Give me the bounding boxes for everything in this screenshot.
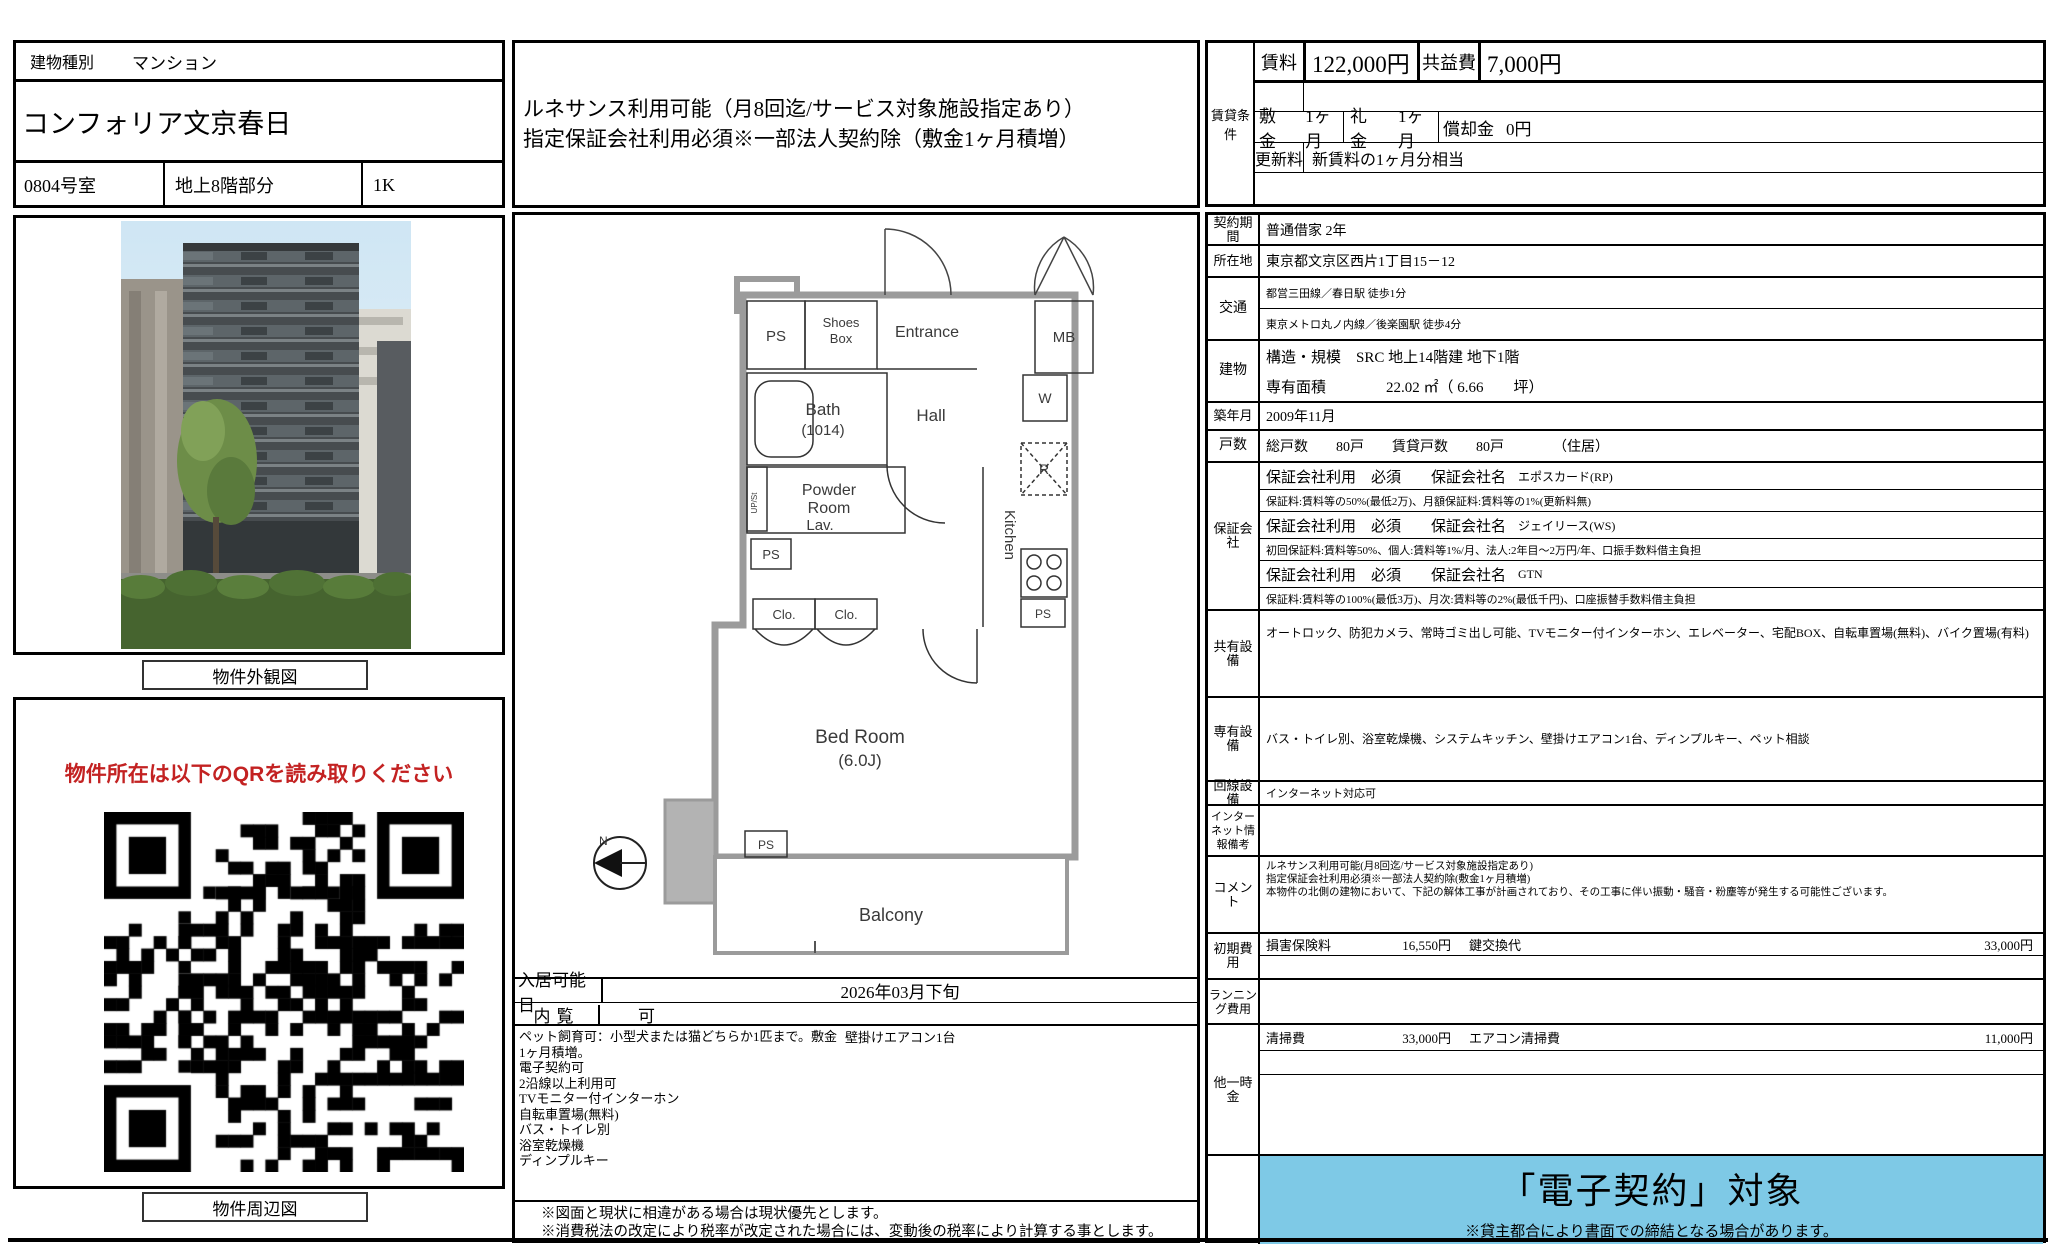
comment-value: ルネサンス利用可能(月8回迄/サービス対象施設指定あり) 指定保証会社利用必須※… [1260,857,2043,932]
guarantor-sub-1: 保証料:賃料等の50%(最低2万)、月額保証料:賃料等の1%(更新料無) [1260,490,2043,512]
shoes-label-2: Box [830,331,853,346]
building-structure: 構造・規模 SRC 地上14階建 地下1階 [1260,341,2043,371]
feature-item: 2沿線以上利用可 [519,1076,1197,1092]
deposit-cell: 敷金 1ヶ月 [1255,112,1344,142]
initial-cost-label: 初期費用 [1208,934,1260,978]
closet-label-2: Clo. [834,607,857,622]
initial-cost-items: 損害保険料 16,550円 鍵交換代 33,000円 [1260,934,2043,956]
initial-cost-empty [1260,956,2043,978]
refrigerator-label: R [1039,461,1049,477]
guarantor-main-3: 保証会社利用 必須 保証会社名 GTN [1260,561,2043,588]
building-type-row: 建物種別 マンション [16,43,502,82]
ps-top-label: PS [766,328,786,345]
access-line-2: 東京メトロ丸ノ内線／後楽園駅 徒歩4分 [1260,309,2043,339]
built-row: 築年月 2009年11月 [1208,403,2043,431]
room-number: 0804号室 [16,163,165,207]
property-sheet: 建物種別 マンション コンフォリア文京春日 0804号室 地上8階部分 1K [0,0,2056,1244]
address-label: 所在地 [1208,246,1260,276]
exterior-photo [121,221,411,649]
hall-label: Hall [916,406,945,425]
rent-group-label: 賃貸条件 [1208,43,1255,204]
running-cost-label: ランニング費用 [1208,980,1260,1023]
amortization-cell: 償却金 0円 [1439,112,2043,142]
feature-item: TVモニター付インターホン [519,1091,1197,1107]
viewing-row: 内覧 可 [515,1005,1197,1026]
upst-label: UP/St [750,492,759,514]
movein-label: 入居可能日 [515,979,603,1002]
ps2-label: PS [762,547,780,562]
onetime-fee-label: 他一時金 [1208,1025,1260,1154]
guarantor-sub-3: 保証料:賃料等の100%(最低3万)、月次:賃料等の2%(最低千円)、口座振替手… [1260,588,2043,609]
insurance-label: 損害保険料 [1260,935,1366,954]
built-label: 築年月 [1208,403,1260,429]
address-value: 東京都文京区西片1丁目15－12 [1260,246,2043,276]
feature-item: 電子契約可 [519,1060,1197,1076]
movein-value: 2026年03月下旬 [603,979,1197,1002]
guarantor-main-1: 保証会社利用 必須 保証会社名 エポスカード(RP) [1260,463,2043,490]
address-row: 所在地 東京都文京区西片1丁目15－12 [1208,246,2043,278]
comment-row: コメント ルネサンス利用可能(月8回迄/サービス対象施設指定あり) 指定保証会社… [1208,857,2043,934]
guarantor-row: 保証会社 保証会社利用 必須 保証会社名 エポスカード(RP) 保証料:賃料等の… [1208,463,2043,611]
building-row: 建物 構造・規模 SRC 地上14階建 地下1階 専有面積 22.02 ㎡（ 6… [1208,341,2043,403]
exterior-caption: 物件外観図 [142,660,368,690]
access-label: 交通 [1208,278,1260,339]
feature-right: 壁掛けエアコン1台 [845,1030,956,1046]
building-type-label: 建物種別 [30,49,94,73]
shoes-label-1: Shoes [823,315,860,330]
lavatory-label: Lav. [806,517,833,534]
internet-label: インターネット情報備考 [1208,806,1260,855]
amortization-value: 0円 [1506,115,1532,140]
comment-label: コメント [1208,857,1260,932]
bedroom-label: Bed Room [815,727,905,748]
map-caption: 物件周辺図 [142,1192,368,1222]
top-note-box: ルネサンス利用可能（月8回迄/サービス対象施設指定あり） 指定保証会社利用必須※… [512,40,1200,208]
ac-cleaning-value: 11,000円 [1985,1028,2043,1047]
movein-row: 入居可能日 2026年03月下旬 [515,977,1197,1003]
rent-row: 賃料 122,000円 共益費 7,000円 [1255,43,2043,83]
entrance-label: Entrance [895,324,959,341]
features-block: ペット飼育可：小型犬または猫どちらか1匹まで。敷金1ヶ月積増。 電子契約可 2沿… [515,1027,1197,1200]
qr-box: 物件所在は以下のQRを読み取りください [13,697,505,1189]
feature-item: バス・トイレ別 [519,1122,1197,1138]
econtract-label-cell [1208,1156,1260,1244]
common-fee-value: 7,000円 [1481,43,2043,80]
unit-row: 0804号室 地上8階部分 1K [16,163,502,207]
running-cost-value [1260,980,2043,1023]
rent-conditions-box: 賃貸条件 賃料 122,000円 共益費 7,000円 敷金 1ヶ月 礼金 1ヶ… [1205,40,2046,207]
onetime-fee-row: 他一時金 清掃費 33,000円 エアコン清掃費 11,000円 [1208,1025,2043,1156]
rent-empty-row [1255,83,2043,112]
layout-type: 1K [363,163,502,207]
renewal-value: 新賃料の1ヶ月分相当 [1304,143,2043,172]
onetime-empty-2 [1260,1075,2043,1154]
rent-label: 賃料 [1255,43,1306,80]
qr-heading: 物件所在は以下のQRを読み取りください [16,758,502,788]
econtract-row: 「電子契約」対象 ※貸主都合により書面での締結となる場合があります。 [1208,1156,2043,1244]
units-label: 戸数 [1208,431,1260,461]
footnote-1: ※図面と現状に相違がある場合は現状優先とします。 [541,1205,1197,1223]
building-area: 専有面積 22.02 ㎡（ 6.66 坪） [1260,371,2043,401]
floorplan-box: N PS Shoes Box Entrance MB Bath (1014) H… [512,212,1200,1243]
north-arrow: N [594,834,646,889]
powder-label-2: Room [808,500,851,517]
cleaning-label: 清掃費 [1260,1028,1366,1047]
contract-row: 契約期間 普通借家 2年 [1208,215,2043,246]
balcony-label: Balcony [859,905,923,925]
viewing-label: 内覧 [515,1005,600,1024]
internet-value [1260,806,2043,855]
rent-value: 122,000円 [1306,43,1420,80]
closet-label-1: Clo. [772,607,795,622]
insurance-value: 16,550円 [1366,935,1451,954]
ps4-label: PS [758,838,774,852]
deposit-row: 敷金 1ヶ月 礼金 1ヶ月 償却金 0円 [1255,112,2043,143]
building-label: 建物 [1208,341,1260,401]
running-cost-row: ランニング費用 [1208,980,2043,1025]
shared-facilities-row: 共有設備 オートロック、防犯カメラ、常時ゴミ出し可能、TVモニター付インターホン… [1208,611,2043,698]
shared-facilities-label: 共有設備 [1208,611,1260,696]
header-box: 建物種別 マンション コンフォリア文京春日 0804号室 地上8階部分 1K [13,40,505,208]
access-row: 交通 都営三田線／春日駅 徒歩1分 東京メトロ丸ノ内線／後楽園駅 徒歩4分 [1208,278,2043,341]
guarantor-label: 保証会社 [1208,463,1260,609]
floor-position: 地上8階部分 [165,163,363,207]
rent-empty-row2 [1255,173,2043,204]
line-facilities-value: インターネット対応可 [1260,782,2043,804]
north-label: N [599,834,608,848]
ps3-label: PS [1035,607,1051,621]
initial-cost-row: 初期費用 損害保険料 16,550円 鍵交換代 33,000円 [1208,934,2043,980]
guarantor-main-2: 保証会社利用 必須 保証会社名 ジェイリース(WS) [1260,512,2043,539]
econtract-title: 「電子契約」対象 [1499,1162,1803,1214]
key-exchange-value: 33,000円 [1984,935,2043,954]
feature-item: 自転車置場(無料) [519,1107,1197,1123]
details-table: 契約期間 普通借家 2年 所在地 東京都文京区西片1丁目15－12 交通 都営三… [1205,212,2046,1243]
feature-item: ディンプルキー [519,1153,1197,1169]
ac-cleaning-label: エアコン清掃費 [1451,1028,1985,1047]
contract-label: 契約期間 [1208,215,1260,244]
bath-label: Bath [806,400,841,419]
floorplan: N PS Shoes Box Entrance MB Bath (1014) H… [515,215,1197,977]
amortization-label: 償却金 [1443,115,1494,140]
bath-size-label: (1014) [801,422,844,439]
onetime-empty-1 [1260,1051,2043,1075]
access-line-1: 都営三田線／春日駅 徒歩1分 [1260,278,2043,309]
page-bottom-rule [8,1238,2048,1242]
powder-label-1: Powder [802,482,857,499]
property-name: コンフォリア文京春日 [16,82,502,163]
mb-label: MB [1053,329,1076,346]
units-value: 総戸数 80戸 賃貸戸数 80戸 （住居） [1260,431,2043,461]
top-note-line1: ルネサンス利用可能（月8回迄/サービス対象施設指定あり） [523,94,1197,124]
feature-item: ペット飼育可：小型犬または猫どちらか1匹まで。敷金1ヶ月積増。 [519,1029,841,1060]
qr-code [104,812,464,1172]
building-type-value: マンション [132,49,217,74]
contract-value: 普通借家 2年 [1260,215,2043,244]
service-block [665,800,715,903]
viewing-value: 可 [600,1005,1197,1024]
cleaning-value: 33,000円 [1366,1028,1451,1047]
private-facilities-label: 専有設備 [1208,698,1260,780]
shared-facilities-value: オートロック、防犯カメラ、常時ゴミ出し可能、TVモニター付インターホン、エレベー… [1260,611,2043,696]
common-fee-label: 共益費 [1420,43,1481,80]
top-note-line2: 指定保証会社利用必須※一部法人契約除（敷金1ヶ月積増） [523,124,1197,154]
units-row: 戸数 総戸数 80戸 賃貸戸数 80戸 （住居） [1208,431,2043,463]
renewal-row: 更新料 新賃料の1ヶ月分相当 [1255,143,2043,173]
key-exchange-label: 鍵交換代 [1451,935,1984,954]
internet-row: インターネット情報備考 [1208,806,2043,857]
footnotes: ※図面と現状に相違がある場合は現状優先とします。 ※消費税法の改定により税率が改… [515,1200,1197,1240]
renewal-label: 更新料 [1255,143,1304,172]
private-facilities-row: 専有設備 バス・トイレ別、浴室乾燥機、システムキッチン、壁掛けエアコン1台、ディ… [1208,698,2043,782]
keymoney-cell: 礼金 1ヶ月 [1344,112,1439,142]
kitchen-label: Kitchen [1001,510,1018,560]
line-facilities-row: 回線設備 インターネット対応可 [1208,782,2043,806]
feature-item: 浴室乾燥機 [519,1138,1197,1154]
built-value: 2009年11月 [1260,403,2043,429]
econtract-banner: 「電子契約」対象 ※貸主都合により書面での締結となる場合があります。 [1260,1156,2043,1244]
guarantor-sub-2: 初回保証料:賃料等50%、個人:賃料等1%/月、法人:2年目～2万円/年、口振手… [1260,539,2043,561]
private-facilities-value: バス・トイレ別、浴室乾燥機、システムキッチン、壁掛けエアコン1台、ディンプルキー… [1260,698,2043,780]
washer-label: W [1038,390,1052,406]
onetime-fee-items: 清掃費 33,000円 エアコン清掃費 11,000円 [1260,1025,2043,1051]
exterior-photo-box [13,215,505,655]
line-facilities-label: 回線設備 [1208,782,1260,804]
bedroom-size-label: (6.0J) [838,751,881,770]
